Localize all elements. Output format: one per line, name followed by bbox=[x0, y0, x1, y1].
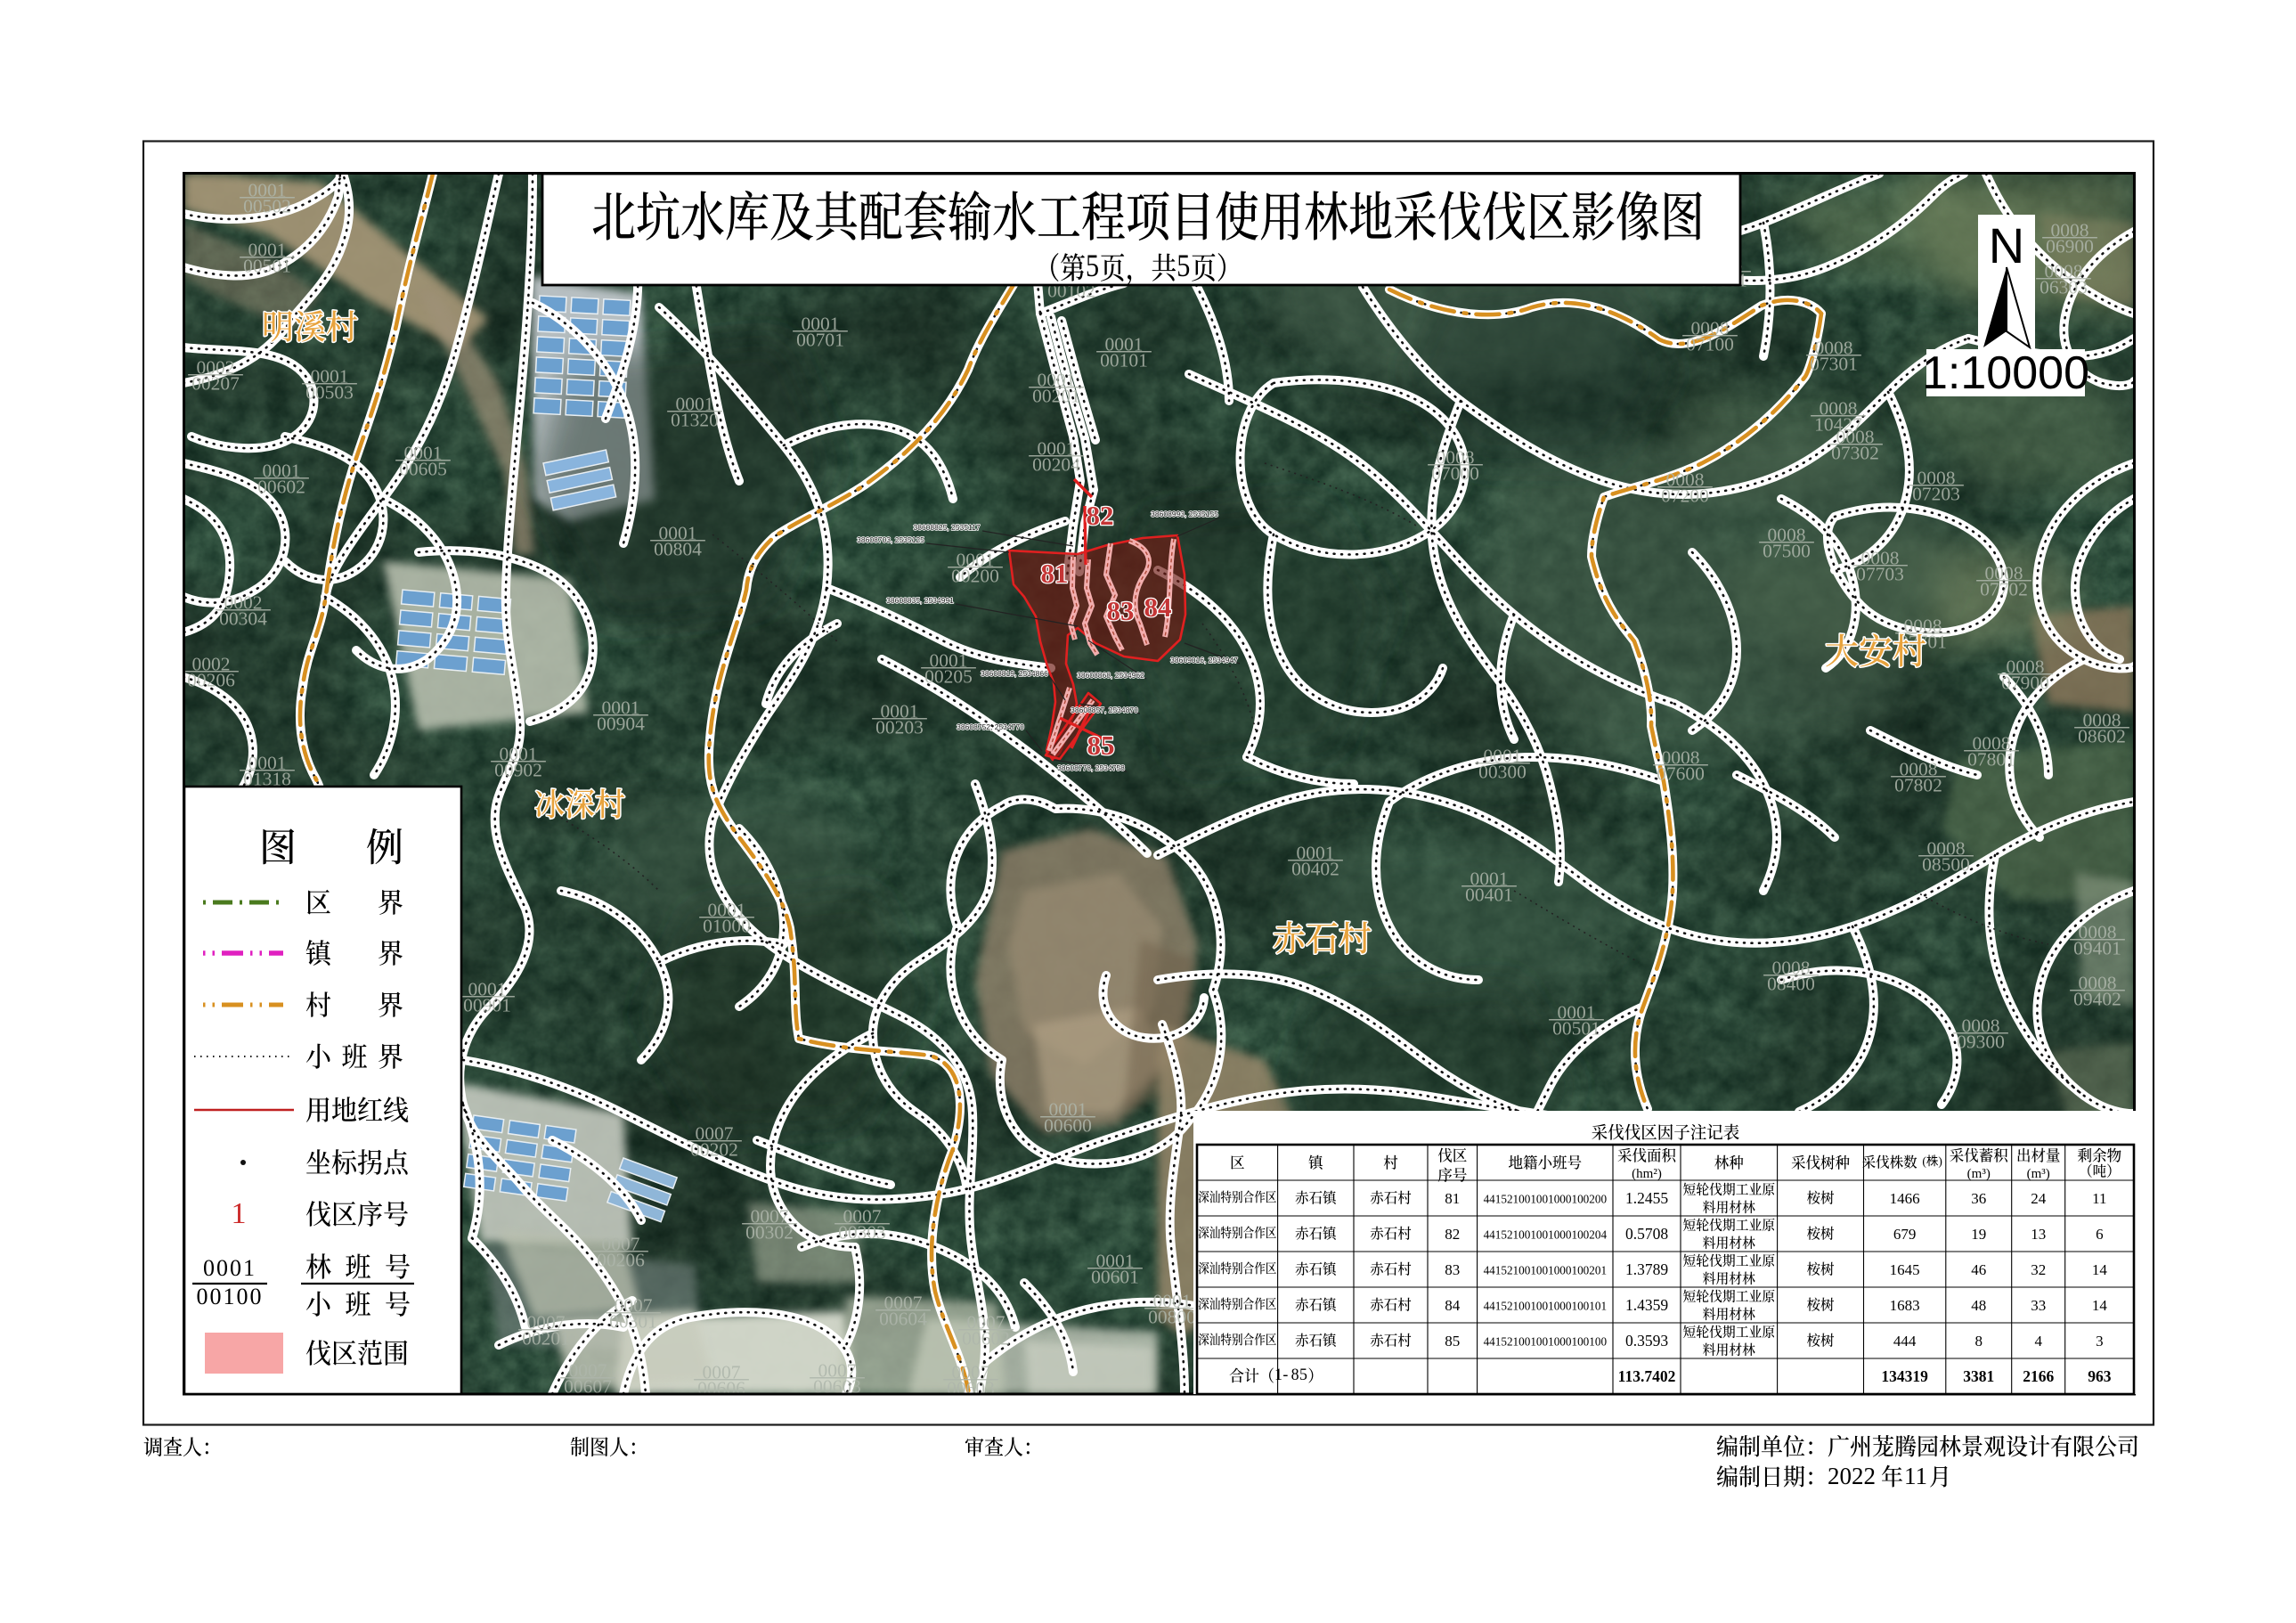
svg-text:00701: 00701 bbox=[796, 330, 844, 351]
svg-text:07500: 07500 bbox=[1763, 541, 1811, 562]
svg-text:(m³): (m³) bbox=[2027, 1167, 2050, 1181]
svg-text:00207: 00207 bbox=[191, 373, 240, 395]
svg-text:0.3593: 0.3593 bbox=[1625, 1332, 1668, 1350]
svg-text:07200: 07200 bbox=[1661, 485, 1709, 507]
svg-text:33: 33 bbox=[2031, 1297, 2046, 1314]
svg-text:82: 82 bbox=[1445, 1226, 1460, 1243]
svg-text:00101: 00101 bbox=[1100, 350, 1148, 371]
svg-text:38608857, 2534870: 38608857, 2534870 bbox=[1071, 705, 1138, 714]
svg-text:00600: 00600 bbox=[1044, 1115, 1092, 1137]
svg-text:07703: 07703 bbox=[1856, 564, 1904, 585]
svg-text:3381: 3381 bbox=[1963, 1367, 1994, 1385]
svg-text:00901: 00901 bbox=[463, 995, 511, 1016]
svg-text:07100: 07100 bbox=[1686, 334, 1734, 355]
svg-text:1.3789: 1.3789 bbox=[1625, 1260, 1668, 1278]
svg-text:00604: 00604 bbox=[879, 1309, 927, 1330]
svg-text:0.5708: 0.5708 bbox=[1625, 1225, 1668, 1243]
svg-text:07203: 07203 bbox=[1912, 484, 1960, 505]
svg-text:38608752, 2534770: 38608752, 2534770 bbox=[957, 722, 1024, 731]
svg-text:00602: 00602 bbox=[962, 1328, 1010, 1350]
svg-text:24: 24 bbox=[2031, 1190, 2047, 1207]
svg-text:11: 11 bbox=[1904, 1463, 1927, 1489]
svg-text:00800: 00800 bbox=[1148, 1307, 1196, 1328]
svg-text:07600: 07600 bbox=[1657, 763, 1705, 785]
svg-text:09300: 09300 bbox=[1957, 1032, 2005, 1053]
svg-text:08500: 08500 bbox=[1922, 854, 1970, 876]
svg-text:00904: 00904 bbox=[597, 714, 645, 735]
svg-text:38608778, 2534758: 38608778, 2534758 bbox=[1057, 763, 1125, 772]
svg-text:3: 3 bbox=[2096, 1333, 2104, 1350]
svg-text:(hm²): (hm²) bbox=[1632, 1167, 1662, 1181]
svg-text:00502: 00502 bbox=[243, 196, 291, 217]
svg-text:08400: 08400 bbox=[1767, 974, 1815, 995]
svg-text:(株): (株) bbox=[1922, 1154, 1942, 1168]
svg-text:00100: 00100 bbox=[197, 1284, 264, 1309]
svg-text:00201: 00201 bbox=[522, 1328, 570, 1350]
svg-text:1.2455: 1.2455 bbox=[1625, 1189, 1668, 1207]
svg-text:1: 1 bbox=[1274, 1366, 1282, 1384]
svg-text:1683: 1683 bbox=[1890, 1297, 1920, 1314]
svg-text:00200: 00200 bbox=[951, 566, 999, 587]
svg-text:00205: 00205 bbox=[924, 666, 973, 688]
svg-text:84: 84 bbox=[1445, 1297, 1461, 1314]
svg-text:134319: 134319 bbox=[1881, 1367, 1928, 1385]
svg-text:00302: 00302 bbox=[745, 1222, 794, 1244]
svg-text:38608825, 2535117: 38608825, 2535117 bbox=[913, 523, 980, 532]
svg-text:(m³): (m³) bbox=[1967, 1167, 1991, 1181]
svg-text:08602: 08602 bbox=[2078, 726, 2126, 747]
svg-text:85: 85 bbox=[1445, 1333, 1460, 1350]
svg-text:38609016, 2534947: 38609016, 2534947 bbox=[1170, 656, 1238, 665]
svg-text:06303: 06303 bbox=[2040, 277, 2088, 298]
svg-text:00203: 00203 bbox=[875, 717, 924, 738]
svg-text:4: 4 bbox=[2034, 1333, 2042, 1350]
svg-text:07900: 07900 bbox=[2001, 673, 2049, 694]
svg-text:2022: 2022 bbox=[1828, 1463, 1876, 1489]
svg-text:00204: 00204 bbox=[1032, 454, 1080, 476]
svg-text:84: 84 bbox=[1144, 591, 1172, 623]
svg-text:38608819, 2534866: 38608819, 2534866 bbox=[981, 669, 1048, 678]
svg-text:11: 11 bbox=[2092, 1190, 2106, 1207]
svg-text:46: 46 bbox=[1971, 1261, 1986, 1278]
svg-text:679: 679 bbox=[1893, 1226, 1917, 1243]
svg-text:N: N bbox=[1989, 217, 2024, 273]
svg-text:07801: 07801 bbox=[1967, 749, 2015, 771]
svg-text:441521001001000100101: 441521001001000100101 bbox=[1484, 1300, 1607, 1313]
svg-text:01000: 01000 bbox=[703, 916, 751, 937]
svg-text:0001: 0001 bbox=[203, 1255, 256, 1281]
svg-text:13: 13 bbox=[2031, 1226, 2046, 1243]
svg-text:441521001001000100100: 441521001001000100100 bbox=[1484, 1335, 1608, 1349]
svg-text:07702: 07702 bbox=[1980, 579, 2028, 600]
svg-text:48: 48 bbox=[1971, 1297, 1986, 1314]
svg-text:00503: 00503 bbox=[305, 382, 354, 404]
svg-text:83: 83 bbox=[1107, 595, 1135, 626]
svg-text:441521001001000100201: 441521001001000100201 bbox=[1484, 1264, 1607, 1277]
svg-text:1:10000: 1:10000 bbox=[1922, 347, 2089, 399]
svg-text:38608703, 2535125: 38608703, 2535125 bbox=[857, 535, 924, 544]
svg-text:19: 19 bbox=[1971, 1226, 1986, 1243]
svg-text:00602: 00602 bbox=[257, 477, 305, 498]
svg-text:85: 85 bbox=[1087, 730, 1115, 761]
svg-text:00206: 00206 bbox=[187, 670, 235, 691]
svg-text:81: 81 bbox=[1041, 558, 1069, 589]
svg-text:00501: 00501 bbox=[1552, 1018, 1600, 1040]
svg-text:82: 82 bbox=[1087, 500, 1114, 531]
svg-text:-: - bbox=[1282, 1366, 1288, 1384]
svg-text:8: 8 bbox=[1291, 1366, 1299, 1384]
svg-text:5: 5 bbox=[1299, 1366, 1307, 1384]
svg-text:1.4359: 1.4359 bbox=[1625, 1296, 1668, 1314]
svg-text:14: 14 bbox=[2092, 1297, 2108, 1314]
svg-text:00401: 00401 bbox=[1465, 885, 1513, 906]
svg-text:5: 5 bbox=[1176, 249, 1190, 284]
svg-text:1466: 1466 bbox=[1890, 1190, 1920, 1207]
svg-text:83: 83 bbox=[1445, 1261, 1460, 1278]
svg-text:6: 6 bbox=[2096, 1226, 2104, 1243]
svg-text:81: 81 bbox=[1445, 1190, 1460, 1207]
svg-text:5: 5 bbox=[1086, 249, 1099, 284]
svg-text:38608835, 2534991: 38608835, 2534991 bbox=[886, 596, 954, 605]
svg-text:07301: 07301 bbox=[1810, 354, 1858, 375]
svg-text:963: 963 bbox=[2088, 1367, 2112, 1385]
svg-text:07802: 07802 bbox=[1894, 775, 1942, 796]
svg-text:2166: 2166 bbox=[2023, 1367, 2054, 1385]
svg-text:00501: 00501 bbox=[243, 256, 291, 277]
svg-text:00601: 00601 bbox=[1091, 1267, 1139, 1288]
svg-text:09401: 09401 bbox=[2073, 938, 2121, 959]
svg-text:36: 36 bbox=[1971, 1190, 1986, 1207]
svg-text:00804: 00804 bbox=[654, 539, 702, 560]
svg-text:38608993, 2535155: 38608993, 2535155 bbox=[1151, 510, 1218, 518]
svg-text:00201: 00201 bbox=[1032, 386, 1080, 407]
svg-text:07000: 07000 bbox=[1431, 463, 1479, 485]
svg-text:00300: 00300 bbox=[1478, 762, 1527, 783]
svg-text:00902: 00902 bbox=[494, 760, 542, 781]
svg-text:00304: 00304 bbox=[219, 608, 267, 630]
svg-text:09402: 09402 bbox=[2073, 989, 2121, 1010]
svg-text:07302: 07302 bbox=[1831, 443, 1879, 464]
svg-text:38608868, 2534962: 38608868, 2534962 bbox=[1077, 671, 1144, 680]
svg-text:1645: 1645 bbox=[1890, 1261, 1920, 1278]
svg-text:00301: 00301 bbox=[609, 1311, 657, 1333]
svg-text:01320: 01320 bbox=[671, 410, 719, 431]
svg-text:00303: 00303 bbox=[838, 1222, 886, 1244]
svg-text:00605: 00605 bbox=[399, 459, 447, 480]
svg-text:444: 444 bbox=[1893, 1333, 1917, 1350]
svg-text:113.7402: 113.7402 bbox=[1618, 1367, 1676, 1385]
svg-text:00202: 00202 bbox=[690, 1139, 738, 1161]
svg-text:32: 32 bbox=[2031, 1261, 2046, 1278]
svg-text:00402: 00402 bbox=[1291, 859, 1339, 880]
svg-text:06900: 06900 bbox=[2046, 236, 2094, 257]
svg-text:00206: 00206 bbox=[597, 1250, 645, 1271]
svg-text:1: 1 bbox=[232, 1197, 247, 1230]
svg-text:14: 14 bbox=[2092, 1261, 2108, 1278]
svg-text:441521001001000100204: 441521001001000100204 bbox=[1484, 1228, 1608, 1242]
svg-text:441521001001000100200: 441521001001000100200 bbox=[1484, 1193, 1608, 1206]
svg-text:8: 8 bbox=[1975, 1333, 1983, 1350]
